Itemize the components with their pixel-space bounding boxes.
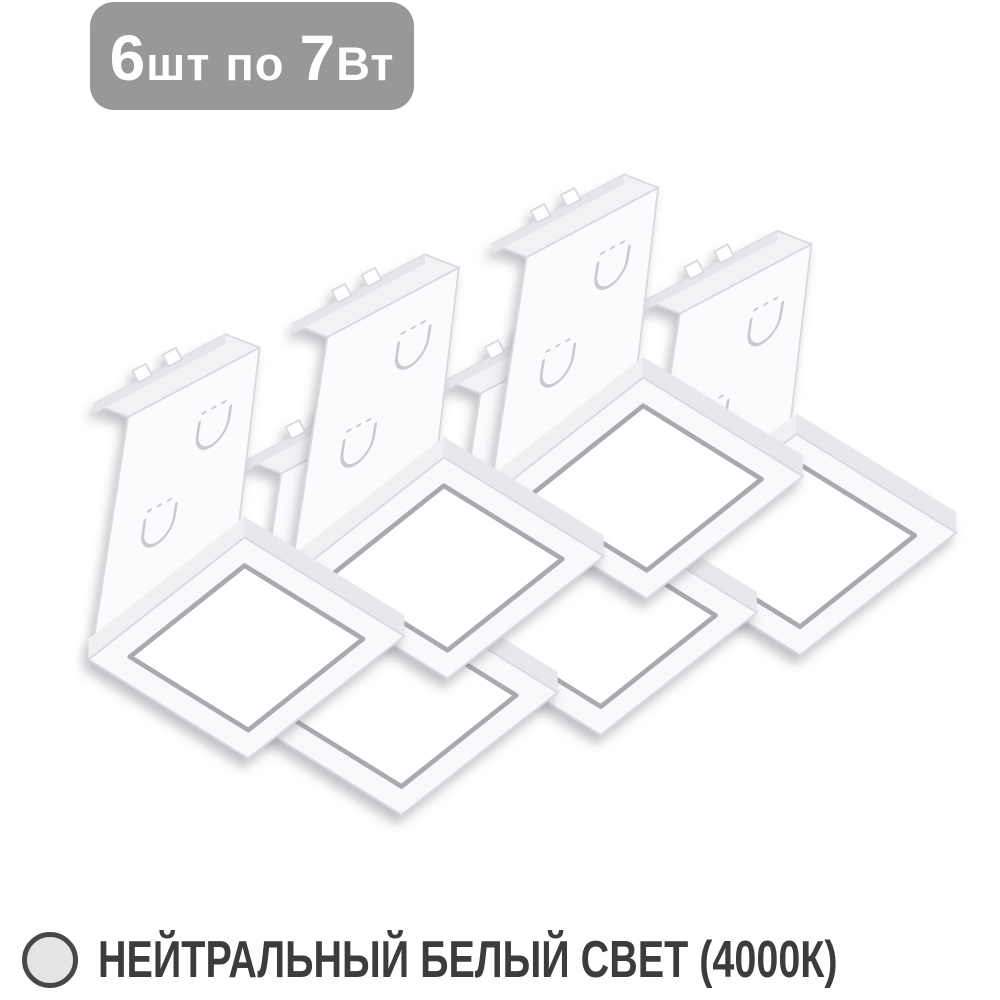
product-render: [0, 0, 1000, 1000]
neutral-white-swatch-icon: [22, 932, 78, 988]
color-temperature-row: НЕЙТРАЛЬНЫЙ БЕЛЫЙ СВЕТ (4000К): [22, 930, 1000, 990]
color-temperature-label: НЕЙТРАЛЬНЫЙ БЕЛЫЙ СВЕТ (4000К): [98, 930, 838, 990]
